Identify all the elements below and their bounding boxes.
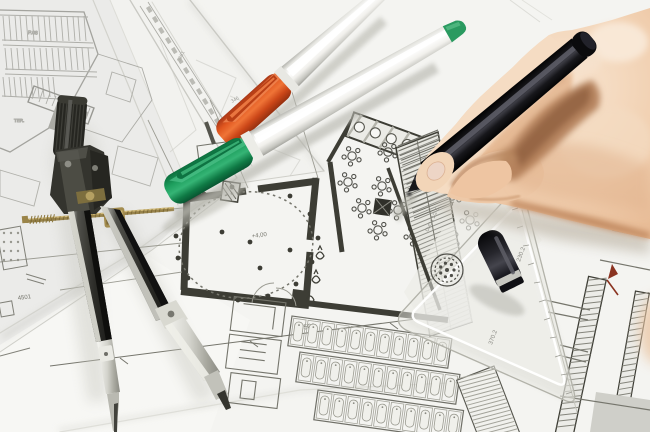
svg-text:TER.: TER.	[14, 118, 24, 123]
svg-text:P.08: P.08	[28, 30, 38, 37]
